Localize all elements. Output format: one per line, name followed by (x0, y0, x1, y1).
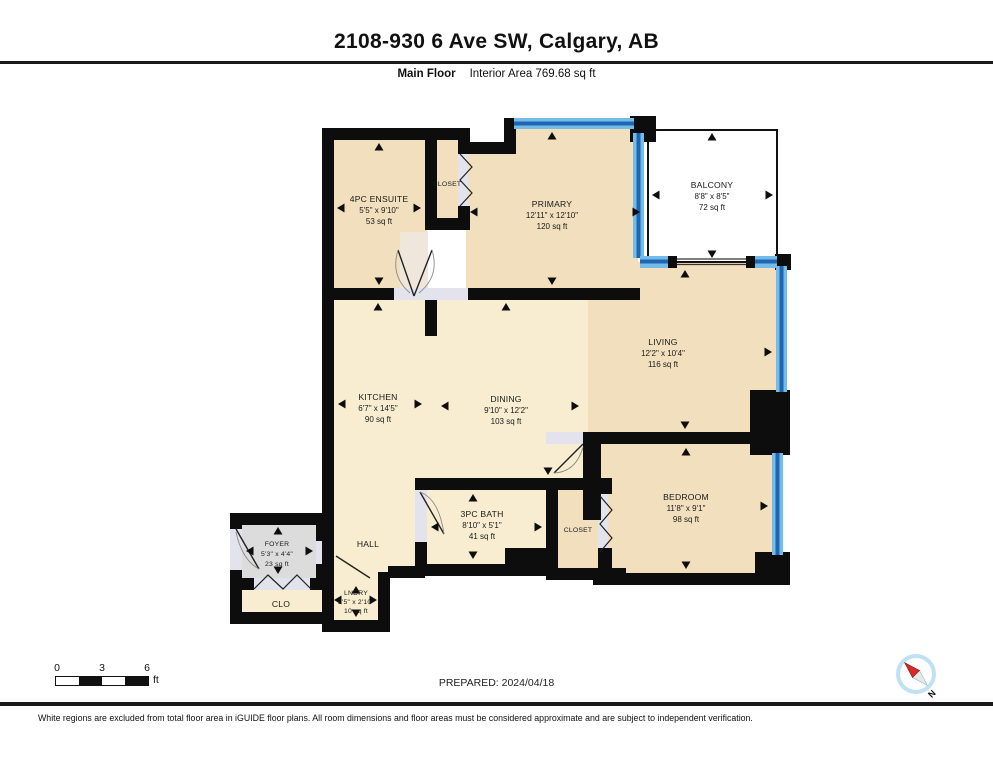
compass-north-label: N (926, 688, 938, 700)
svg-text:103 sq ft: 103 sq ft (491, 417, 522, 426)
scale-tick-3: 3 (92, 662, 112, 674)
label-ensuite: 4PC ENSUITE (350, 194, 409, 204)
svg-text:6'7" x 14'5": 6'7" x 14'5" (358, 404, 398, 413)
svg-text:8'8" x 8'5": 8'8" x 8'5" (695, 192, 730, 201)
svg-text:5'5" x 9'10": 5'5" x 9'10" (359, 206, 399, 215)
svg-text:12'11" x 12'10": 12'11" x 12'10" (526, 211, 578, 220)
svg-text:90 sq ft: 90 sq ft (365, 415, 392, 424)
label-clo: CLO (272, 599, 290, 609)
svg-text:98 sq ft: 98 sq ft (673, 515, 700, 524)
svg-text:11'8" x 9'1": 11'8" x 9'1" (667, 504, 706, 513)
label-hall: HALL (357, 539, 379, 549)
svg-text:12'2" x 10'4": 12'2" x 10'4" (641, 349, 685, 358)
svg-text:41 sq ft: 41 sq ft (469, 532, 496, 541)
svg-text:9'10" x 12'2": 9'10" x 12'2" (484, 406, 528, 415)
label-bedroom: BEDROOM (663, 492, 709, 502)
label-closet-bedroom: CLOSET (564, 527, 592, 534)
compass-icon: N (890, 650, 946, 706)
floor-plan: 4PC ENSUITE 5'5" x 9'10" 53 sq ft CLOSET… (0, 0, 993, 768)
room-closet-primary (435, 136, 460, 220)
label-lndry: LNDRY (344, 590, 368, 597)
svg-text:8'10" x 5'1": 8'10" x 5'1" (462, 521, 502, 530)
label-living: LIVING (648, 337, 677, 347)
svg-text:5'3" x 4'4": 5'3" x 4'4" (261, 551, 293, 558)
label-balcony: BALCONY (691, 180, 734, 190)
label-bath: 3PC BATH (461, 509, 504, 519)
room-primary-top (514, 128, 638, 158)
label-primary: PRIMARY (532, 199, 572, 209)
svg-text:120 sq ft: 120 sq ft (537, 222, 568, 231)
disclaimer-text: White regions are excluded from total fl… (38, 713, 968, 723)
scale-tick-0: 0 (47, 662, 67, 674)
footer-divider (0, 702, 993, 706)
room-hall (328, 478, 425, 578)
svg-text:116 sq ft: 116 sq ft (648, 360, 679, 369)
label-kitchen: KITCHEN (358, 392, 397, 402)
svg-text:53 sq ft: 53 sq ft (366, 217, 393, 226)
label-closet-primary: CLOSET (433, 181, 461, 188)
svg-text:23 sq ft: 23 sq ft (265, 561, 289, 568)
svg-text:72 sq ft: 72 sq ft (699, 203, 726, 212)
label-foyer: FOYER (265, 541, 289, 548)
scale-tick-6: 6 (137, 662, 157, 674)
svg-text:3'5" x 2'10": 3'5" x 2'10" (338, 599, 374, 606)
prepared-date: PREPARED: 2024/04/18 (0, 677, 993, 689)
label-dining: DINING (490, 394, 521, 404)
room-kitchen-dining (334, 298, 588, 480)
svg-text:10 sq ft: 10 sq ft (344, 608, 368, 615)
